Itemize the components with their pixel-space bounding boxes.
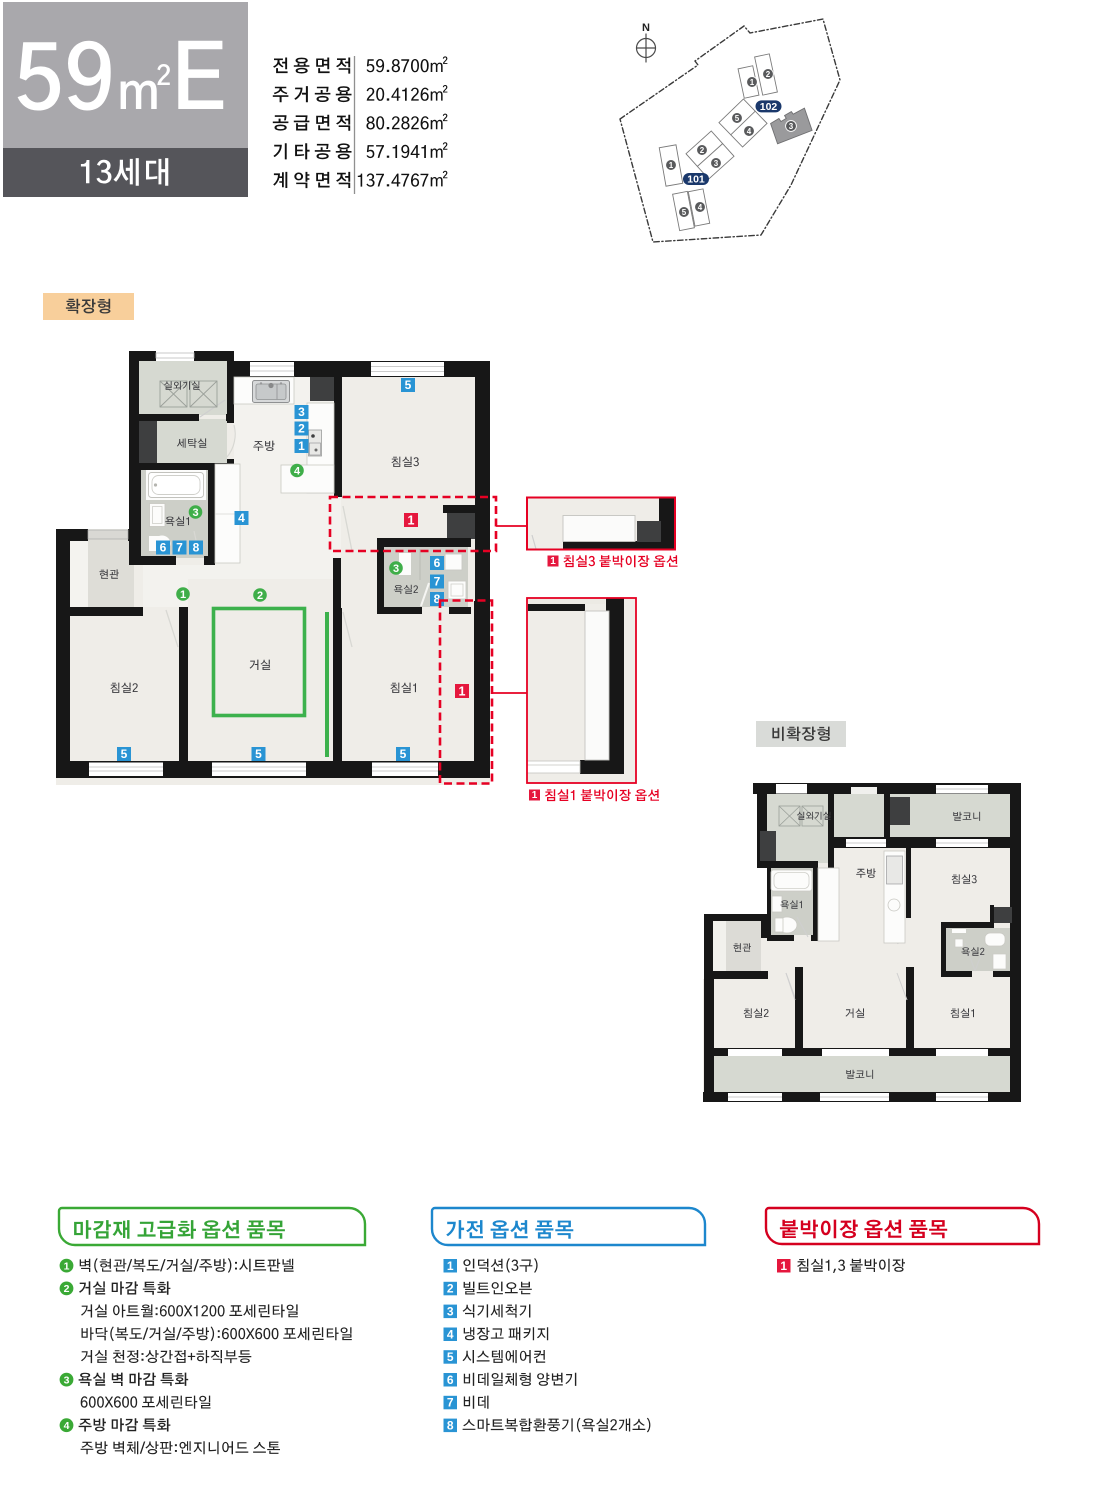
svg-text:3: 3 — [298, 405, 305, 419]
svg-text:4: 4 — [238, 511, 245, 525]
svg-text:7: 7 — [176, 541, 183, 555]
svg-text:N: N — [642, 22, 650, 34]
svg-text:1: 1 — [64, 1260, 70, 1272]
svg-text:4: 4 — [447, 1327, 454, 1341]
svg-text:2: 2 — [257, 590, 263, 602]
svg-text:1: 1 — [780, 1259, 787, 1273]
svg-text:1: 1 — [669, 161, 674, 170]
svg-text:3: 3 — [64, 1374, 70, 1386]
svg-text:5: 5 — [682, 208, 687, 217]
svg-text:5: 5 — [735, 114, 740, 123]
svg-text:102: 102 — [760, 101, 778, 113]
svg-text:2: 2 — [700, 146, 705, 155]
svg-text:8: 8 — [447, 1419, 454, 1433]
svg-text:1: 1 — [532, 790, 538, 801]
svg-text:1: 1 — [298, 439, 305, 453]
svg-text:1: 1 — [180, 589, 186, 601]
svg-text:5: 5 — [121, 747, 128, 761]
svg-text:1: 1 — [408, 513, 415, 527]
svg-text:3: 3 — [714, 159, 719, 168]
svg-text:8: 8 — [193, 541, 200, 555]
svg-text:4: 4 — [294, 465, 301, 477]
svg-text:6: 6 — [434, 556, 441, 570]
svg-text:3: 3 — [789, 122, 794, 131]
svg-text:2: 2 — [64, 1283, 70, 1295]
svg-text:5: 5 — [405, 378, 412, 392]
svg-text:4: 4 — [64, 1420, 70, 1432]
svg-text:101: 101 — [687, 174, 705, 186]
svg-text:1: 1 — [750, 78, 755, 87]
svg-text:6: 6 — [160, 541, 167, 555]
svg-text:3: 3 — [192, 507, 198, 519]
svg-text:1: 1 — [459, 684, 466, 698]
svg-text:5: 5 — [447, 1350, 454, 1364]
svg-text:7: 7 — [434, 575, 441, 589]
svg-text:7: 7 — [447, 1396, 454, 1410]
svg-text:3: 3 — [447, 1305, 454, 1319]
svg-text:5: 5 — [255, 747, 262, 761]
svg-text:2: 2 — [447, 1282, 454, 1296]
svg-text:3: 3 — [393, 563, 399, 575]
svg-text:1: 1 — [447, 1259, 454, 1273]
svg-text:1: 1 — [550, 556, 556, 567]
svg-text:2: 2 — [766, 70, 771, 79]
svg-text:4: 4 — [698, 203, 703, 212]
svg-text:5: 5 — [400, 747, 407, 761]
svg-text:4: 4 — [747, 127, 752, 136]
svg-text:2: 2 — [298, 422, 305, 436]
svg-text:6: 6 — [447, 1373, 454, 1387]
